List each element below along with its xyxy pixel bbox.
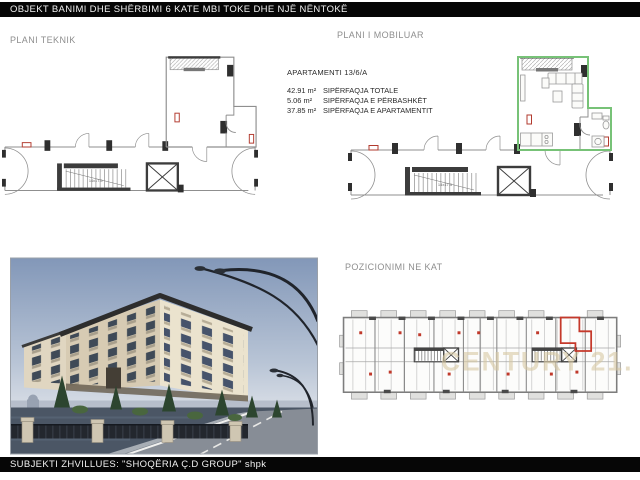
floor-position-label: POZICIONIMI NE KAT xyxy=(345,262,443,272)
area-value: 5.06 m² xyxy=(287,96,323,106)
toilet xyxy=(603,121,609,129)
furniture xyxy=(521,73,610,147)
sofa xyxy=(572,84,583,108)
floor-key-plan: CENTURY 21. xyxy=(337,292,637,405)
footer-bar: SUBJEKTI ZHVILLUES: "SHOQËRIA Ç.D GROUP"… xyxy=(0,457,640,472)
washing-machine xyxy=(592,136,604,147)
entrance xyxy=(106,368,121,389)
plan-sheet-page: OBJEKT BANIMI DHE SHËRBIMI 6 KATE MBI TO… xyxy=(0,0,640,480)
header-bar: OBJEKT BANIMI DHE SHËRBIMI 6 KATE MBI TO… xyxy=(0,2,640,17)
sink xyxy=(592,113,602,119)
building-render-photo xyxy=(10,257,318,455)
tv-unit xyxy=(521,75,526,101)
area-value: 42.91 m² xyxy=(287,86,323,96)
toilet-tank xyxy=(603,116,609,120)
header-title: OBJEKT BANIMI DHE SHËRBIMI 6 KATE MBI TO… xyxy=(10,4,348,15)
furnished-plan-drawing xyxy=(348,55,613,215)
technical-plan-drawing: 14x17.5 xyxy=(2,55,258,210)
kitchen-counter xyxy=(521,133,553,146)
sofa xyxy=(548,73,582,84)
armchair xyxy=(542,78,549,88)
furnished-plan-label: PLANI I MOBILUAR xyxy=(337,30,424,40)
technical-plan-label: PLANI TEKNIK xyxy=(10,35,76,45)
footer-title: SUBJEKTI ZHVILLUES: "SHOQËRIA Ç.D GROUP"… xyxy=(10,459,266,470)
area-value: 37.85 m² xyxy=(287,106,323,116)
watermark-text: CENTURY 21. xyxy=(441,347,634,377)
coffee-table xyxy=(553,91,562,102)
technical-plan-base xyxy=(2,56,258,194)
